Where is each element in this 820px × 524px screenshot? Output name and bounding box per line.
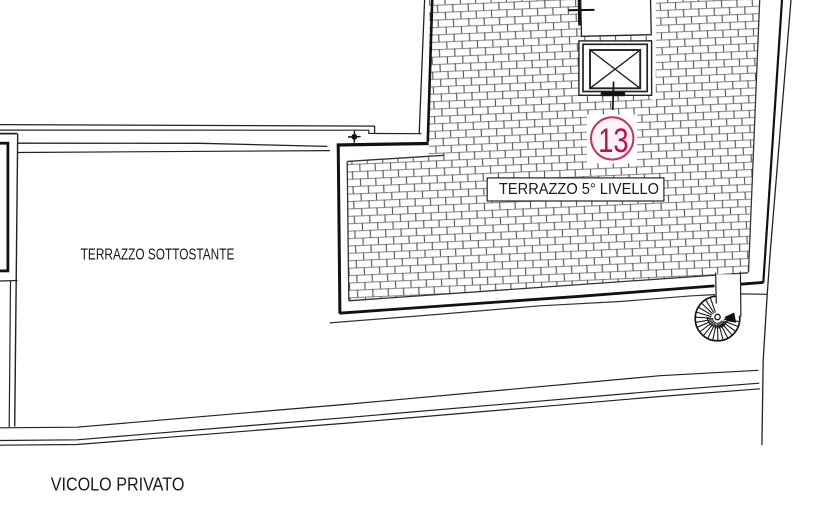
svg-text:VICOLO PRIVATO: VICOLO PRIVATO bbox=[51, 473, 185, 494]
svg-text:TERRAZZO 5° LIVELLO: TERRAZZO 5° LIVELLO bbox=[499, 181, 659, 198]
svg-text:TERRAZZO SOTTOSTANTE: TERRAZZO SOTTOSTANTE bbox=[81, 246, 235, 263]
svg-text:13: 13 bbox=[598, 121, 628, 160]
